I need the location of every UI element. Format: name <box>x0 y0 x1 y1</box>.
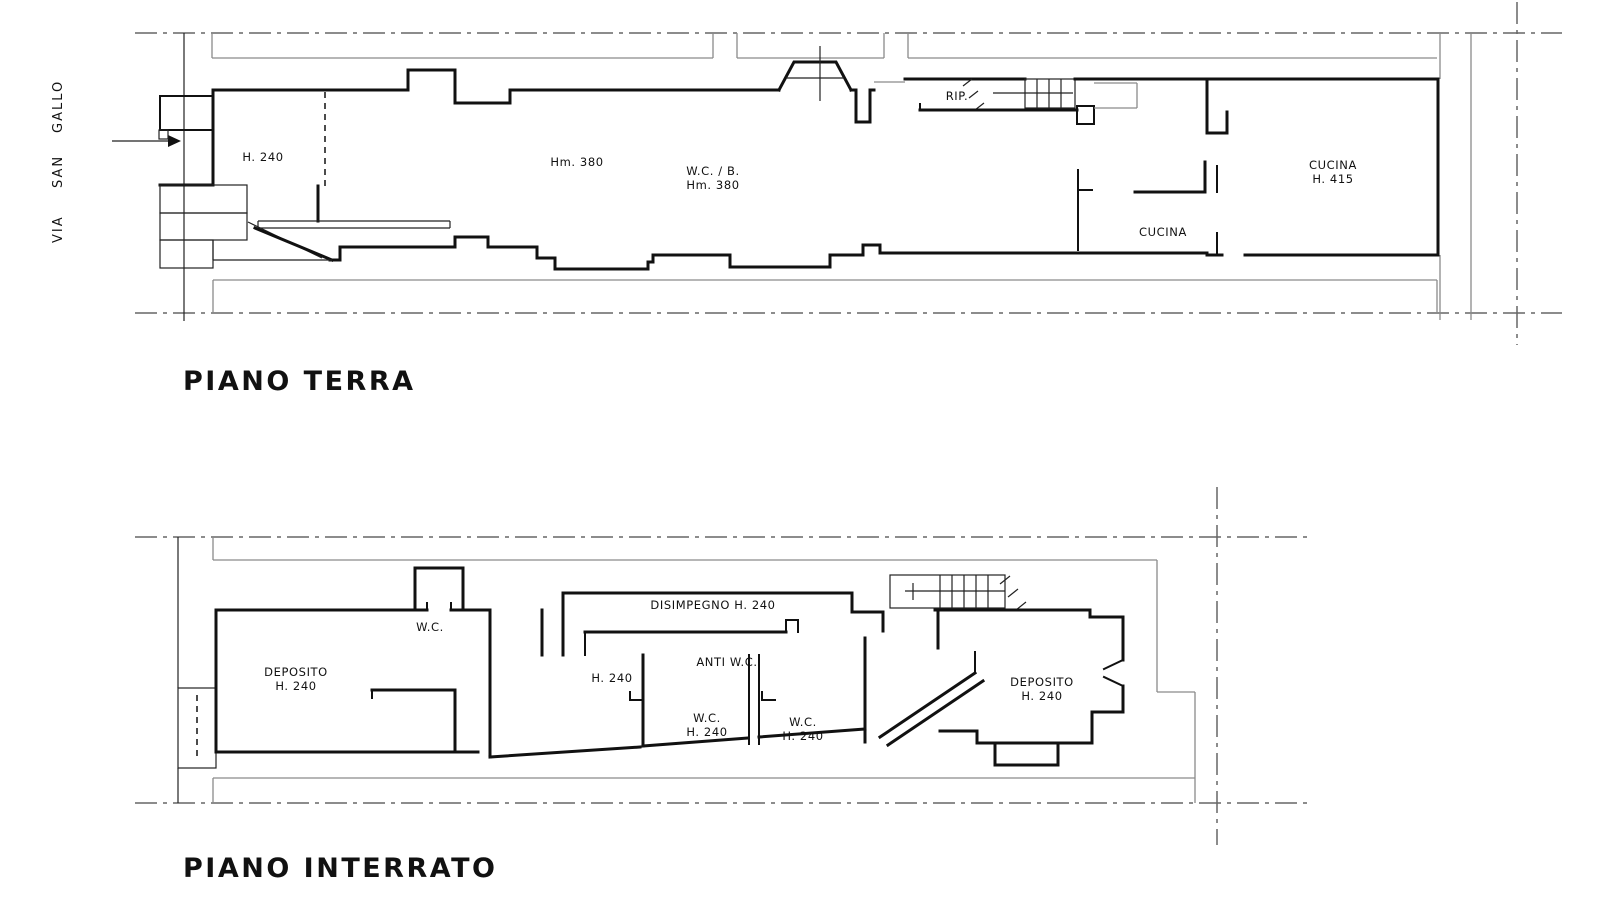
entrance-arrow <box>112 130 181 147</box>
entrance-arrow-head <box>168 135 181 147</box>
hall-bottom-wall <box>330 237 1207 269</box>
floor-plan-drawing: H. 240 Hm. 380 W.C. / B. Hm. 380 RIP. CU… <box>0 0 1600 900</box>
room-label-wc1: W.C. <box>693 711 721 725</box>
sidewalk-band-top <box>212 33 1437 58</box>
entry-arch-wall <box>779 62 851 90</box>
room-label-cucina-big: CUCINA <box>1309 158 1357 172</box>
room-labels-terra: H. 240 Hm. 380 W.C. / B. Hm. 380 RIP. CU… <box>242 89 1357 239</box>
wc-box-door-jambs <box>427 603 451 610</box>
room-label-cucina-small: CUCINA <box>1139 225 1187 239</box>
stairs-interrato-break-marks <box>1000 576 1026 610</box>
room-label-anti-wc: ANTI W.C. <box>696 655 757 669</box>
band-top-lower <box>213 537 1157 560</box>
deposito-right-door-wedge <box>1104 660 1123 686</box>
plan-piano-terra: H. 240 Hm. 380 W.C. / B. Hm. 380 RIP. CU… <box>112 2 1562 397</box>
room-label-wc2: W.C. <box>789 715 817 729</box>
room-label-rip: RIP. <box>946 89 969 103</box>
room-label-disimpegno: DISIMPEGNO H. 240 <box>650 598 775 612</box>
room-label-deposito-left: DEPOSITO <box>264 665 328 679</box>
room-label-wcb-height: Hm. 380 <box>686 178 739 192</box>
left-box-3 <box>160 240 213 268</box>
lower-left-outline <box>213 240 332 260</box>
street-word-via: VIA <box>51 215 66 243</box>
band-right-edge <box>1440 33 1471 320</box>
room-label-wc1-height: H. 240 <box>686 725 727 739</box>
wall-stub-right-of-arch <box>851 90 874 122</box>
hall-top-wall <box>213 70 779 103</box>
room-label-deposito-left-height: H. 240 <box>275 679 316 693</box>
street-label: VIA SAN GALLO <box>51 80 66 243</box>
cucina-piccola-wall <box>1078 170 1092 250</box>
band-right-lower <box>1157 560 1195 803</box>
anti-wc-jamb <box>585 620 798 655</box>
room-label-wc-lower: W.C. <box>416 620 444 634</box>
entry-arch-steps <box>786 46 844 101</box>
stairs-interrato-rail <box>905 583 1005 600</box>
plan-title-interrato: PIANO INTERRATO <box>183 853 497 884</box>
room-label-h240: H. 240 <box>242 150 283 164</box>
band-bottom-lower <box>213 778 1195 803</box>
kitchen-counter-wall <box>1135 162 1205 192</box>
deposito-right-inner-wall <box>940 731 977 743</box>
left-niche-box <box>160 96 213 130</box>
wc-door-stubs <box>630 692 775 700</box>
street-word-gallo: GALLO <box>51 80 66 133</box>
room-label-deposito-right: DEPOSITO <box>1010 675 1074 689</box>
room-labels-interrato: DEPOSITO H. 240 W.C. DISIMPEGNO H. 240 A… <box>264 598 1074 743</box>
corridor-walls <box>490 610 542 757</box>
plan-title-terra: PIANO TERRA <box>183 366 416 397</box>
stair-landing-lines <box>1094 83 1137 108</box>
room-label-hm380: Hm. 380 <box>550 155 603 169</box>
stair-newel-block <box>1077 106 1094 124</box>
entrance-marker-box <box>159 130 168 139</box>
room-label-wcb: W.C. / B. <box>686 164 740 178</box>
ramp-wall <box>255 228 332 260</box>
wc-box-walls <box>415 568 463 610</box>
room-label-wc2-height: H. 240 <box>782 729 823 743</box>
left-box-2 <box>160 213 247 240</box>
room-label-cucina-big-height: H. 415 <box>1312 172 1353 186</box>
sidewalk-band-bottom <box>213 280 1437 313</box>
diagonal-walls <box>880 673 983 745</box>
room-label-deposito-right-height: H. 240 <box>1021 689 1062 703</box>
deposito-right-bottom-bump <box>995 743 1058 765</box>
street-word-san: SAN <box>51 155 66 188</box>
ledge-outline <box>258 221 450 228</box>
left-box-1 <box>160 185 247 213</box>
room-label-h240-lower: H. 240 <box>591 671 632 685</box>
plan-piano-interrato: DEPOSITO H. 240 W.C. DISIMPEGNO H. 240 A… <box>135 487 1310 884</box>
deposito-right-top-walls <box>935 610 1123 648</box>
